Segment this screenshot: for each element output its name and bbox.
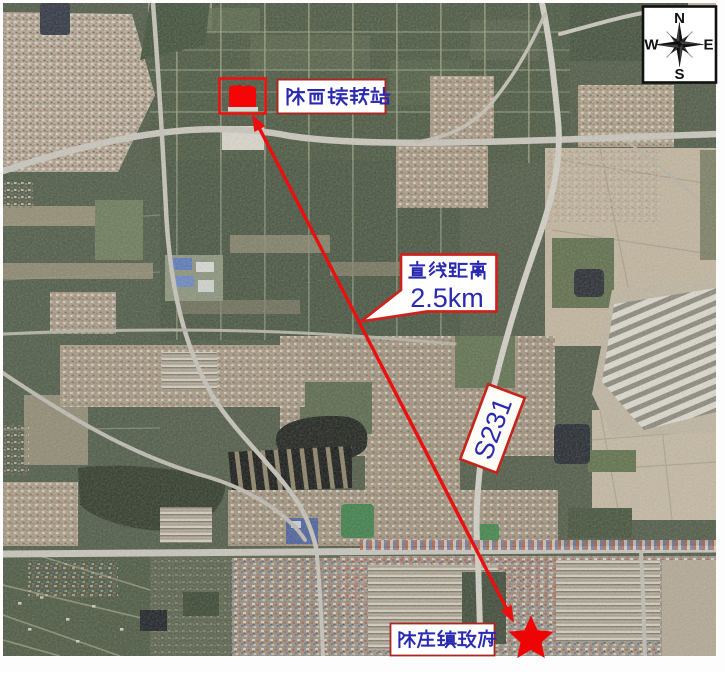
svg-text:W: W [644, 37, 659, 54]
svg-text:S: S [674, 66, 684, 83]
svg-text:N: N [674, 10, 685, 27]
svg-text:2.5km: 2.5km [410, 283, 484, 313]
svg-text:E: E [703, 37, 713, 54]
